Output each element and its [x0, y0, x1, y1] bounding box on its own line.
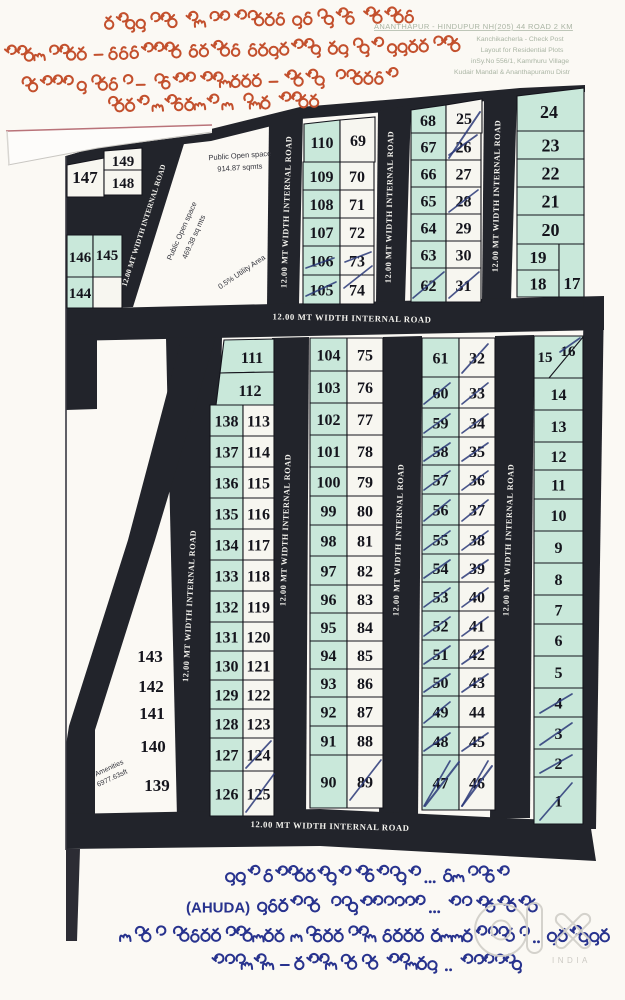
svg-text:108: 108	[310, 197, 334, 214]
svg-text:84: 84	[357, 620, 373, 637]
svg-text:98: 98	[321, 533, 337, 550]
svg-text:119: 119	[247, 599, 270, 616]
svg-text:79: 79	[357, 474, 373, 491]
svg-text:74: 74	[349, 282, 365, 299]
svg-text:146: 146	[69, 250, 92, 266]
svg-text:95: 95	[321, 620, 337, 637]
svg-text:116: 116	[247, 506, 270, 523]
svg-text:19: 19	[530, 248, 547, 267]
svg-text:137: 137	[215, 444, 239, 461]
svg-text:8: 8	[555, 572, 563, 589]
svg-text:107: 107	[310, 225, 334, 242]
svg-text:INDIA: INDIA	[552, 956, 591, 965]
svg-text:141: 141	[139, 704, 165, 723]
svg-text:Layout for Residential Plots: Layout for Residential Plots	[481, 47, 564, 54]
svg-text:110: 110	[310, 135, 333, 152]
svg-text:24: 24	[540, 102, 558, 122]
svg-text:6: 6	[555, 633, 563, 650]
svg-text:96: 96	[321, 592, 337, 609]
svg-text:12: 12	[551, 449, 567, 466]
svg-text:145: 145	[96, 248, 119, 264]
svg-text:78: 78	[357, 444, 373, 461]
svg-text:127: 127	[215, 747, 239, 764]
svg-text:72: 72	[349, 225, 365, 242]
svg-text:104: 104	[317, 347, 341, 364]
svg-text:inSy.No 556/1, Kamrhuru Villa: inSy.No 556/1, Kamrhuru Village	[471, 58, 569, 65]
svg-text:94: 94	[321, 648, 337, 665]
svg-text:131: 131	[215, 629, 239, 646]
svg-text:109: 109	[310, 169, 334, 186]
svg-text:61: 61	[433, 350, 449, 367]
svg-text:118: 118	[247, 568, 270, 585]
svg-text:82: 82	[357, 563, 373, 580]
svg-text:92: 92	[321, 704, 337, 721]
svg-text:128: 128	[215, 716, 239, 733]
svg-text:77: 77	[357, 412, 373, 429]
svg-text:103: 103	[317, 380, 341, 397]
svg-text:49: 49	[433, 704, 449, 721]
svg-text:5: 5	[555, 665, 563, 682]
svg-text:102: 102	[317, 412, 341, 429]
svg-text:20: 20	[542, 220, 560, 240]
svg-text:97: 97	[321, 563, 337, 580]
svg-text:56: 56	[433, 502, 449, 519]
svg-text:75: 75	[357, 347, 373, 364]
svg-text:69: 69	[350, 133, 366, 150]
svg-text:22: 22	[542, 163, 560, 183]
svg-text:120: 120	[247, 629, 271, 646]
svg-text:67: 67	[421, 139, 437, 156]
svg-text:23: 23	[542, 135, 560, 155]
svg-text:124: 124	[247, 747, 271, 764]
svg-text:27: 27	[456, 166, 472, 183]
svg-text:86: 86	[357, 676, 373, 693]
svg-text:21: 21	[542, 191, 560, 211]
svg-text:15: 15	[538, 350, 553, 366]
svg-text:14: 14	[551, 387, 567, 404]
svg-text:112: 112	[238, 383, 261, 400]
svg-text:10: 10	[551, 508, 567, 525]
svg-text:13: 13	[551, 419, 567, 436]
svg-text:134: 134	[215, 537, 239, 554]
svg-text:139: 139	[144, 776, 170, 795]
svg-text:93: 93	[321, 676, 337, 693]
svg-text:142: 142	[138, 677, 164, 696]
svg-text:122: 122	[247, 687, 271, 704]
svg-text:149: 149	[112, 154, 135, 170]
svg-text:133: 133	[215, 568, 239, 585]
svg-text:143: 143	[137, 647, 163, 666]
svg-text:135: 135	[215, 506, 239, 523]
svg-text:111: 111	[241, 350, 263, 367]
svg-text:32: 32	[469, 350, 485, 367]
svg-text:80: 80	[357, 503, 373, 520]
svg-text:65: 65	[421, 193, 437, 210]
svg-text:117: 117	[247, 537, 270, 554]
svg-text:18: 18	[530, 275, 547, 294]
svg-text:81: 81	[357, 533, 373, 550]
svg-text:Kudair Mandal & Ananthapuramu: Kudair Mandal & Ananthapuramu Distr	[454, 69, 571, 76]
svg-text:91: 91	[321, 733, 337, 750]
svg-text:87: 87	[357, 704, 373, 721]
svg-text:90: 90	[321, 774, 337, 791]
svg-text:113: 113	[247, 413, 270, 430]
svg-text:129: 129	[215, 687, 239, 704]
svg-text:85: 85	[357, 648, 373, 665]
svg-text:148: 148	[112, 176, 135, 192]
svg-text:88: 88	[357, 733, 373, 750]
svg-text:71: 71	[349, 197, 365, 214]
svg-text:100: 100	[317, 474, 341, 491]
svg-text:83: 83	[357, 592, 373, 609]
svg-text:114: 114	[247, 444, 270, 461]
svg-text:76: 76	[357, 380, 373, 397]
svg-text:101: 101	[317, 444, 341, 461]
svg-text:ANANTHAPUR - HINDUPUR NH(205): ANANTHAPUR - HINDUPUR NH(205) 44 ROAD 2 …	[374, 22, 573, 31]
svg-text:123: 123	[247, 716, 271, 733]
svg-text:17: 17	[564, 274, 582, 293]
svg-text:60: 60	[433, 385, 449, 402]
svg-text:130: 130	[215, 658, 239, 675]
svg-text:136: 136	[215, 475, 239, 492]
svg-text:63: 63	[421, 247, 437, 264]
svg-text:144: 144	[69, 286, 92, 302]
svg-text:132: 132	[215, 599, 239, 616]
svg-text:7: 7	[555, 602, 563, 619]
svg-text:64: 64	[421, 220, 437, 237]
svg-text:29: 29	[456, 220, 472, 237]
svg-text:11: 11	[551, 477, 566, 494]
svg-text:115: 115	[247, 475, 270, 492]
svg-text:44: 44	[469, 704, 485, 721]
svg-text:25: 25	[456, 111, 472, 128]
svg-text:Kanchikacherla - Check Post: Kanchikacherla - Check Post	[476, 36, 563, 43]
svg-text:66: 66	[421, 166, 437, 183]
svg-text:30: 30	[456, 247, 472, 264]
svg-text:68: 68	[420, 113, 436, 130]
svg-text:121: 121	[247, 658, 271, 675]
svg-text:147: 147	[72, 168, 98, 187]
svg-text:99: 99	[321, 503, 337, 520]
svg-text:70: 70	[349, 169, 365, 186]
svg-text:126: 126	[215, 786, 239, 803]
svg-text:140: 140	[140, 737, 166, 756]
svg-text:(AHUDA): (AHUDA)	[186, 899, 250, 916]
svg-text:138: 138	[215, 413, 239, 430]
svg-text:9: 9	[555, 540, 563, 557]
